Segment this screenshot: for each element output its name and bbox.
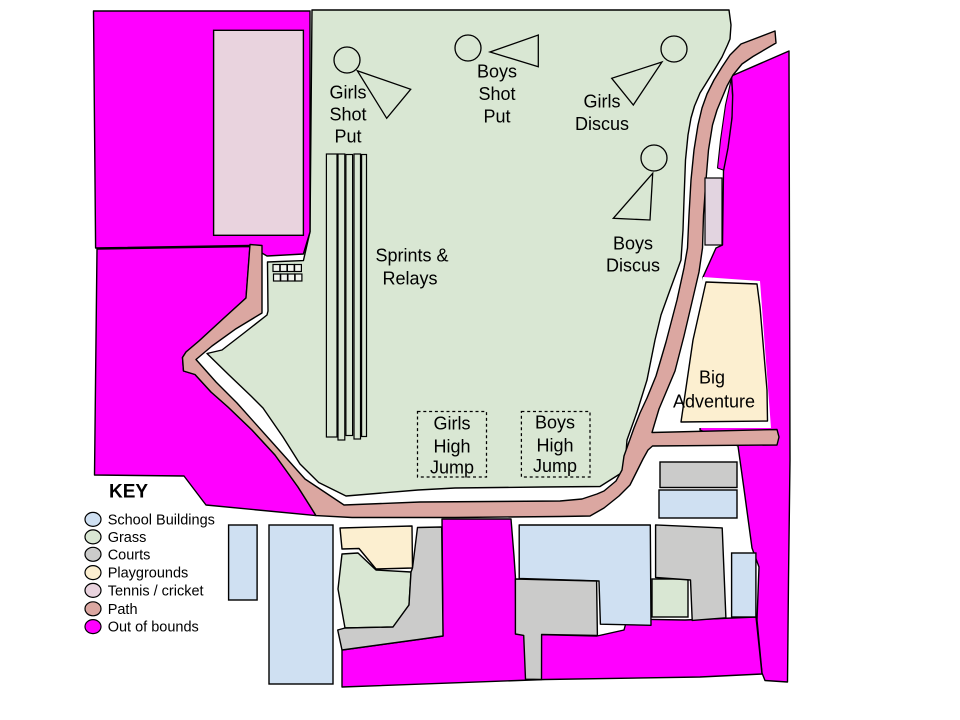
svg-text:School Buildings: School Buildings xyxy=(108,512,215,528)
svg-text:Boys: Boys xyxy=(477,62,517,82)
svg-text:Shot: Shot xyxy=(329,105,366,125)
svg-text:Out of bounds: Out of bounds xyxy=(108,620,199,636)
svg-text:Discus: Discus xyxy=(575,114,629,134)
svg-text:Boys: Boys xyxy=(613,234,653,254)
svg-text:Grass: Grass xyxy=(108,530,147,546)
svg-text:Shot: Shot xyxy=(478,84,515,104)
svg-text:Playgrounds: Playgrounds xyxy=(108,566,189,582)
svg-text:Jump: Jump xyxy=(533,456,577,476)
svg-text:KEY: KEY xyxy=(109,482,148,503)
svg-text:Big: Big xyxy=(699,368,725,388)
svg-text:Courts: Courts xyxy=(108,547,151,563)
svg-text:High: High xyxy=(536,436,573,456)
svg-text:Girls: Girls xyxy=(584,92,621,112)
svg-text:Jump: Jump xyxy=(430,458,474,478)
svg-text:Girls: Girls xyxy=(434,414,471,434)
svg-text:Sprints &: Sprints & xyxy=(375,246,448,266)
svg-text:Path: Path xyxy=(108,602,138,618)
svg-text:Relays: Relays xyxy=(382,269,437,289)
svg-text:Adventure: Adventure xyxy=(673,392,755,412)
svg-text:Tennis / cricket: Tennis / cricket xyxy=(108,583,204,599)
svg-text:Boys: Boys xyxy=(535,413,575,433)
svg-text:Put: Put xyxy=(334,127,361,147)
svg-text:Discus: Discus xyxy=(606,256,660,276)
svg-text:Put: Put xyxy=(483,107,510,127)
svg-text:Girls: Girls xyxy=(330,83,367,103)
svg-text:High: High xyxy=(433,437,470,457)
